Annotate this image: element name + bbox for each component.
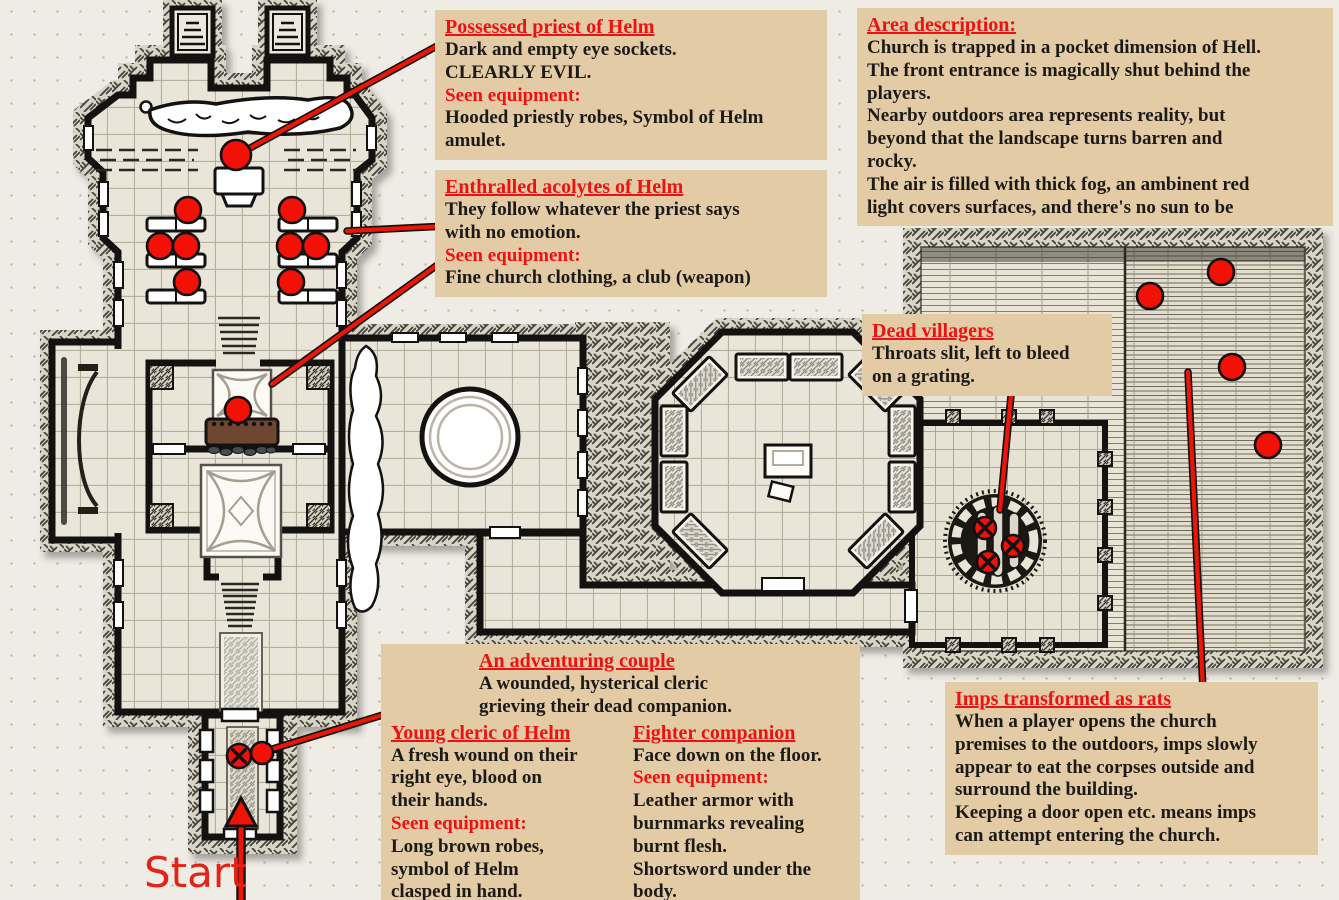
equipment-label: Seen equipment: (633, 767, 850, 790)
large-rug (201, 465, 281, 557)
marker-imp-rat-1 (1137, 283, 1163, 309)
courtyard-door (905, 590, 917, 622)
note-intro: A wounded, hysterical cleric grieving th… (479, 673, 850, 719)
marker-imp-rat-4 (1255, 432, 1281, 458)
fighter-companion-column: Fighter companion Face down on the floor… (633, 721, 850, 900)
equipment-text: Long brown robes, symbol of Helm clasped… (391, 836, 617, 900)
note-title: Enthralled acolytes of Helm (445, 175, 817, 199)
note-area-description: Area description: Church is trapped in a… (857, 8, 1333, 226)
start-label: Start (144, 852, 247, 894)
altar-banner (141, 98, 353, 136)
note-imps-as-rats: Imps transformed as rats When a player o… (945, 682, 1318, 855)
marker-young-cleric (251, 742, 273, 764)
sanctuary-door-right (293, 444, 325, 454)
note-title: Fighter companion (633, 721, 850, 745)
marker-acolyte-6 (277, 233, 303, 259)
equipment-text: Hooded priestly robes, Symbol of Helm am… (445, 107, 817, 153)
note-title: Imps transformed as rats (955, 687, 1308, 711)
dm-map-page: Possessed priest of Helm Dark and empty … (0, 0, 1339, 900)
marker-imp-rat-3 (1219, 354, 1245, 380)
couple-header: An adventuring couple A wounded, hysteri… (479, 649, 850, 719)
note-body: A fresh wound on their right eye, blood … (391, 745, 617, 813)
note-title: Dead villagers (872, 319, 1102, 343)
equipment-text: Fine church clothing, a club (weapon) (445, 267, 817, 290)
chapel-door (490, 527, 520, 538)
transept-niche (52, 342, 125, 540)
marker-acolyte-8 (278, 269, 304, 295)
altar (206, 419, 278, 456)
note-enthralled-acolytes: Enthralled acolytes of Helm They follow … (435, 170, 827, 297)
marker-possessed-priest (221, 140, 251, 170)
sanctuary-door-left (153, 444, 185, 454)
note-body: They follow whatever the priest says wit… (445, 199, 817, 245)
marker-acolyte-7 (303, 233, 329, 259)
marker-imp-rat-2 (1208, 259, 1234, 285)
note-body: Throats slit, left to bleed on a grating… (872, 343, 1102, 389)
equipment-label: Seen equipment: (391, 813, 617, 836)
equipment-label: Seen equipment: (445, 85, 817, 108)
note-body: When a player opens the church premises … (955, 711, 1308, 848)
marker-acolyte-4 (174, 269, 200, 295)
note-possessed-priest: Possessed priest of Helm Dark and empty … (435, 10, 827, 160)
note-title: Area description: (867, 13, 1323, 37)
note-title: Possessed priest of Helm (445, 15, 817, 39)
note-body: Face down on the floor. (633, 745, 850, 768)
runner-rug (220, 633, 262, 713)
vestibule-door-top (222, 709, 258, 721)
note-body: Dark and empty eye sockets. CLEARLY EVIL… (445, 39, 817, 85)
marker-acolyte-3 (173, 233, 199, 259)
equipment-text: Leather armor with burnmarks revealing b… (633, 790, 850, 900)
round-font (422, 389, 518, 485)
marker-acolyte-1 (175, 197, 201, 223)
octagon-door (762, 578, 804, 591)
note-title: Young cleric of Helm (391, 721, 617, 745)
note-title: An adventuring couple (479, 649, 850, 673)
note-dead-villagers: Dead villagers Throats slit, left to ble… (862, 314, 1112, 396)
marker-acolyte-5 (279, 197, 305, 223)
equipment-label: Seen equipment: (445, 245, 817, 268)
stair-tower-right (267, 8, 308, 56)
courtyard (912, 410, 1112, 652)
stair-tower-left (172, 8, 213, 56)
torn-curtain (348, 346, 383, 612)
young-cleric-column: Young cleric of Helm A fresh wound on th… (391, 721, 617, 900)
note-body: Church is trapped in a pocket dimension … (867, 37, 1323, 219)
marker-acolyte-2 (147, 233, 173, 259)
note-adventuring-couple: An adventuring couple A wounded, hysteri… (381, 644, 860, 900)
marker-acolyte-sanctuary (225, 397, 251, 423)
